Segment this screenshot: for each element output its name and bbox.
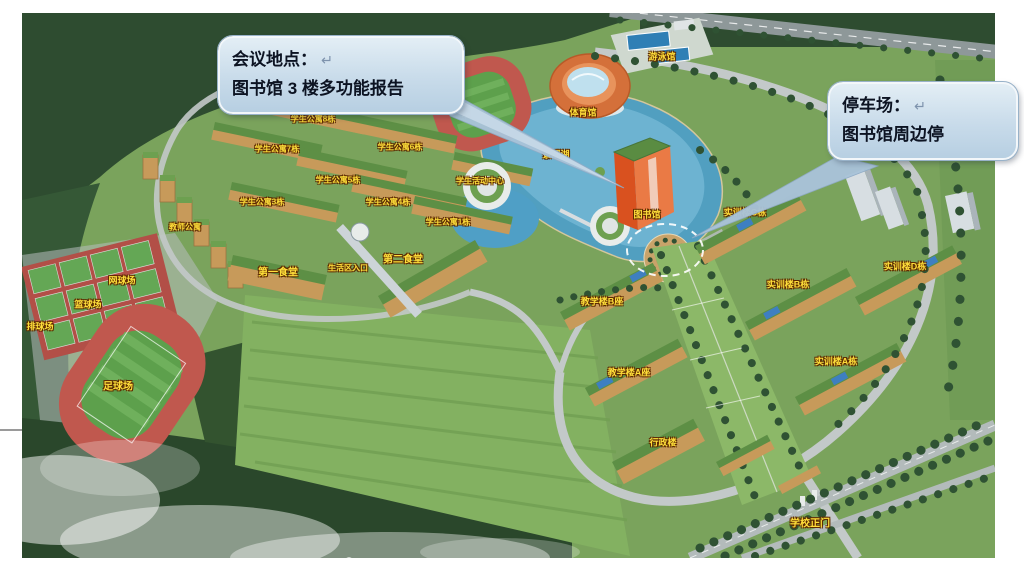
meeting-callout-title-line: 会议地点：↵: [232, 46, 450, 75]
return-mark-icon: ↵: [317, 53, 333, 69]
parking-callout-title-line: 停车场：↵: [842, 92, 1004, 121]
activity-center: [463, 162, 511, 210]
meeting-location-callout: 会议地点：↵ 图书馆 3 楼多功能报告: [218, 36, 464, 114]
slide-canvas: 场游泳馆体育馆场学生公寓8栋学生公寓6栋学生公寓7栋景观湖学生公寓5栋学生活动中…: [0, 0, 1024, 579]
return-mark-icon: ↵: [910, 99, 926, 115]
parking-callout-title: 停车场：: [842, 96, 910, 115]
parking-callout: 停车场：↵ 图书馆周边停: [828, 82, 1018, 160]
gymnasium: [550, 54, 630, 118]
library-building: [614, 138, 674, 230]
meeting-callout-body: 图书馆 3 楼多功能报告: [232, 75, 450, 104]
left-margin-rule: [0, 429, 22, 431]
meeting-callout-title: 会议地点：: [232, 50, 317, 69]
parking-callout-body: 图书馆周边停: [842, 121, 1004, 150]
